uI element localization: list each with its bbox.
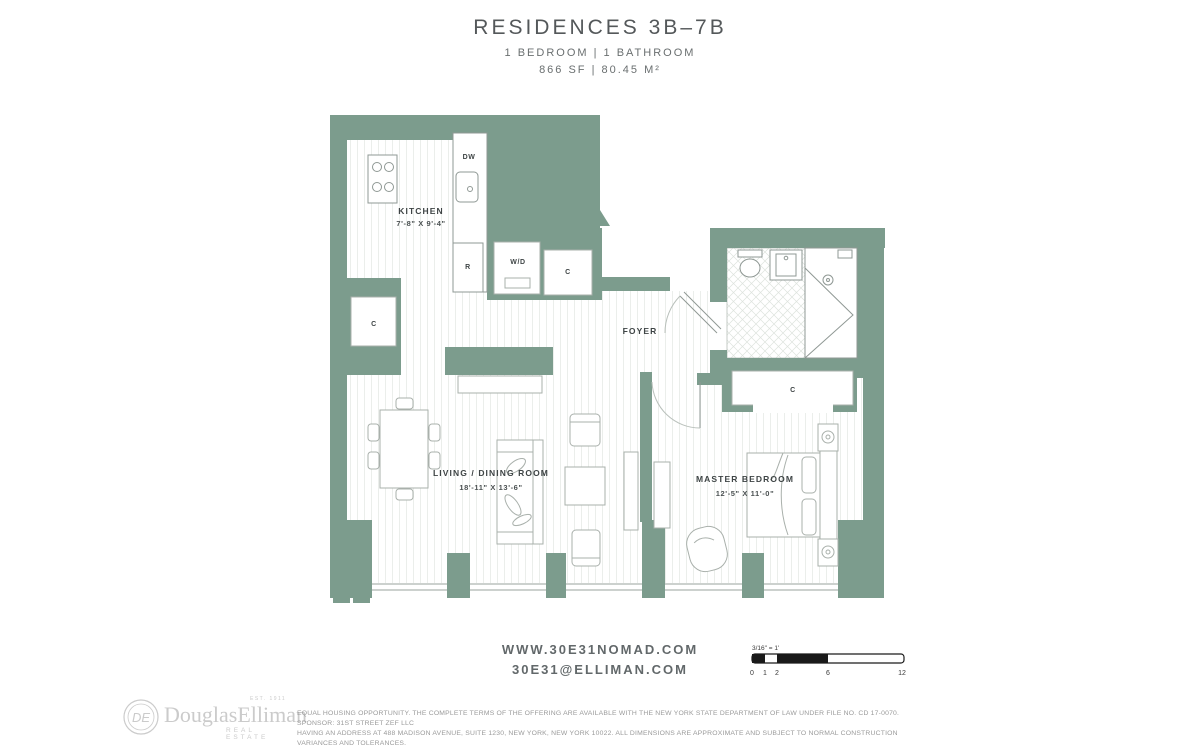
de-monogram-icon: DE [122, 698, 162, 738]
email-link[interactable]: 30E31@ELLIMAN.COM [0, 662, 1200, 677]
brand-est: EST. 1911 [250, 696, 286, 702]
svg-text:DE: DE [132, 710, 150, 725]
bedroom-dims: 12'-5" X 11'-0" [716, 489, 774, 498]
refrigerator-label: R [465, 264, 471, 271]
floorplan-page: RESIDENCES 3B–7B 1 BEDROOM | 1 BATHROOM … [0, 0, 1200, 750]
brand-wordmark: DouglasElliman [164, 702, 307, 728]
closet-label-1: C [565, 269, 571, 276]
website-link[interactable]: WWW.30E31NOMAD.COM [0, 642, 1200, 657]
bedroom-label: MASTER BEDROOM [696, 474, 794, 484]
kitchen-label: KITCHEN [398, 206, 443, 216]
closet-label-3: C [790, 387, 796, 394]
legal-line-2: HAVING AN ADDRESS AT 488 MADISON AVENUE,… [297, 729, 909, 749]
closet-label-2: C [371, 321, 377, 328]
contact-block: WWW.30E31NOMAD.COM 30E31@ELLIMAN.COM [0, 642, 1200, 677]
living-dims: 18'-11" X 13'-6" [459, 483, 522, 492]
legal-disclaimer: EQUAL HOUSING OPPORTUNITY. THE COMPLETE … [297, 709, 909, 749]
floor-plan: KITCHEN 7'-8" X 9'-4" FOYER LIVING / DIN… [0, 0, 1200, 750]
washer-dryer-label: W/D [510, 259, 525, 266]
living-label: LIVING / DINING ROOM [433, 468, 549, 478]
dishwasher-label: DW [463, 154, 476, 161]
kitchen-dims: 7'-8" X 9'-4" [396, 219, 445, 228]
legal-line-1: EQUAL HOUSING OPPORTUNITY. THE COMPLETE … [297, 709, 909, 729]
brand-tagline: REAL ESTATE [226, 727, 294, 741]
windows [340, 584, 884, 590]
foyer-label: FOYER [623, 326, 658, 336]
douglas-elliman-logo: DE DouglasElliman EST. 1911 REAL ESTATE [122, 696, 294, 740]
